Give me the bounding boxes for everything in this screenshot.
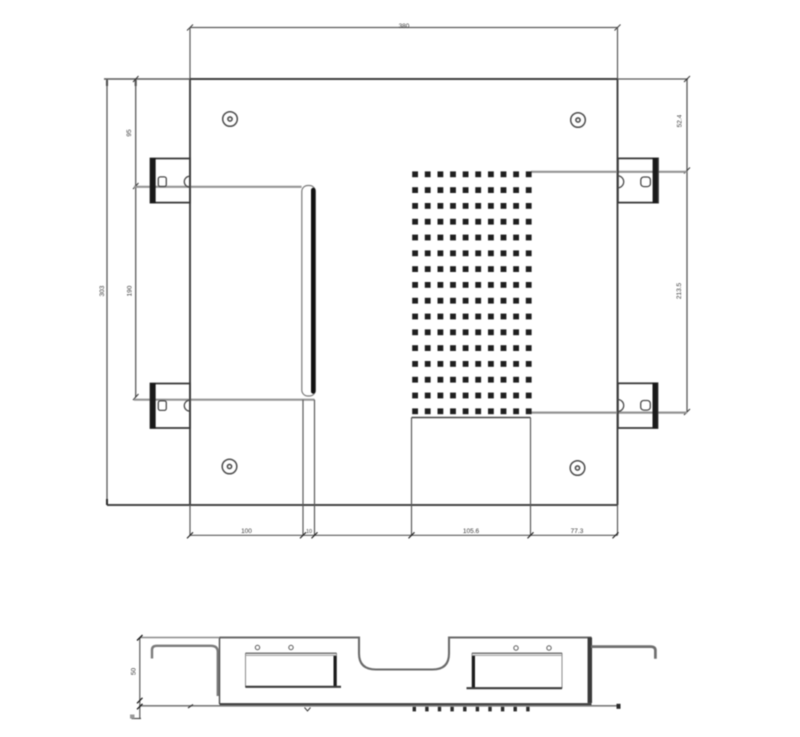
svg-text:213.5: 213.5 xyxy=(676,282,683,299)
svg-text:380: 380 xyxy=(399,23,410,30)
svg-text:10: 10 xyxy=(306,529,312,535)
svg-text:190: 190 xyxy=(127,285,134,296)
svg-text:303: 303 xyxy=(99,285,106,296)
svg-text:100: 100 xyxy=(241,528,252,535)
svg-text:77.3: 77.3 xyxy=(571,528,584,535)
svg-text:52.4: 52.4 xyxy=(677,114,684,127)
svg-text:105.6: 105.6 xyxy=(463,528,480,535)
svg-text:95: 95 xyxy=(126,129,133,137)
svg-text:50: 50 xyxy=(131,668,138,676)
